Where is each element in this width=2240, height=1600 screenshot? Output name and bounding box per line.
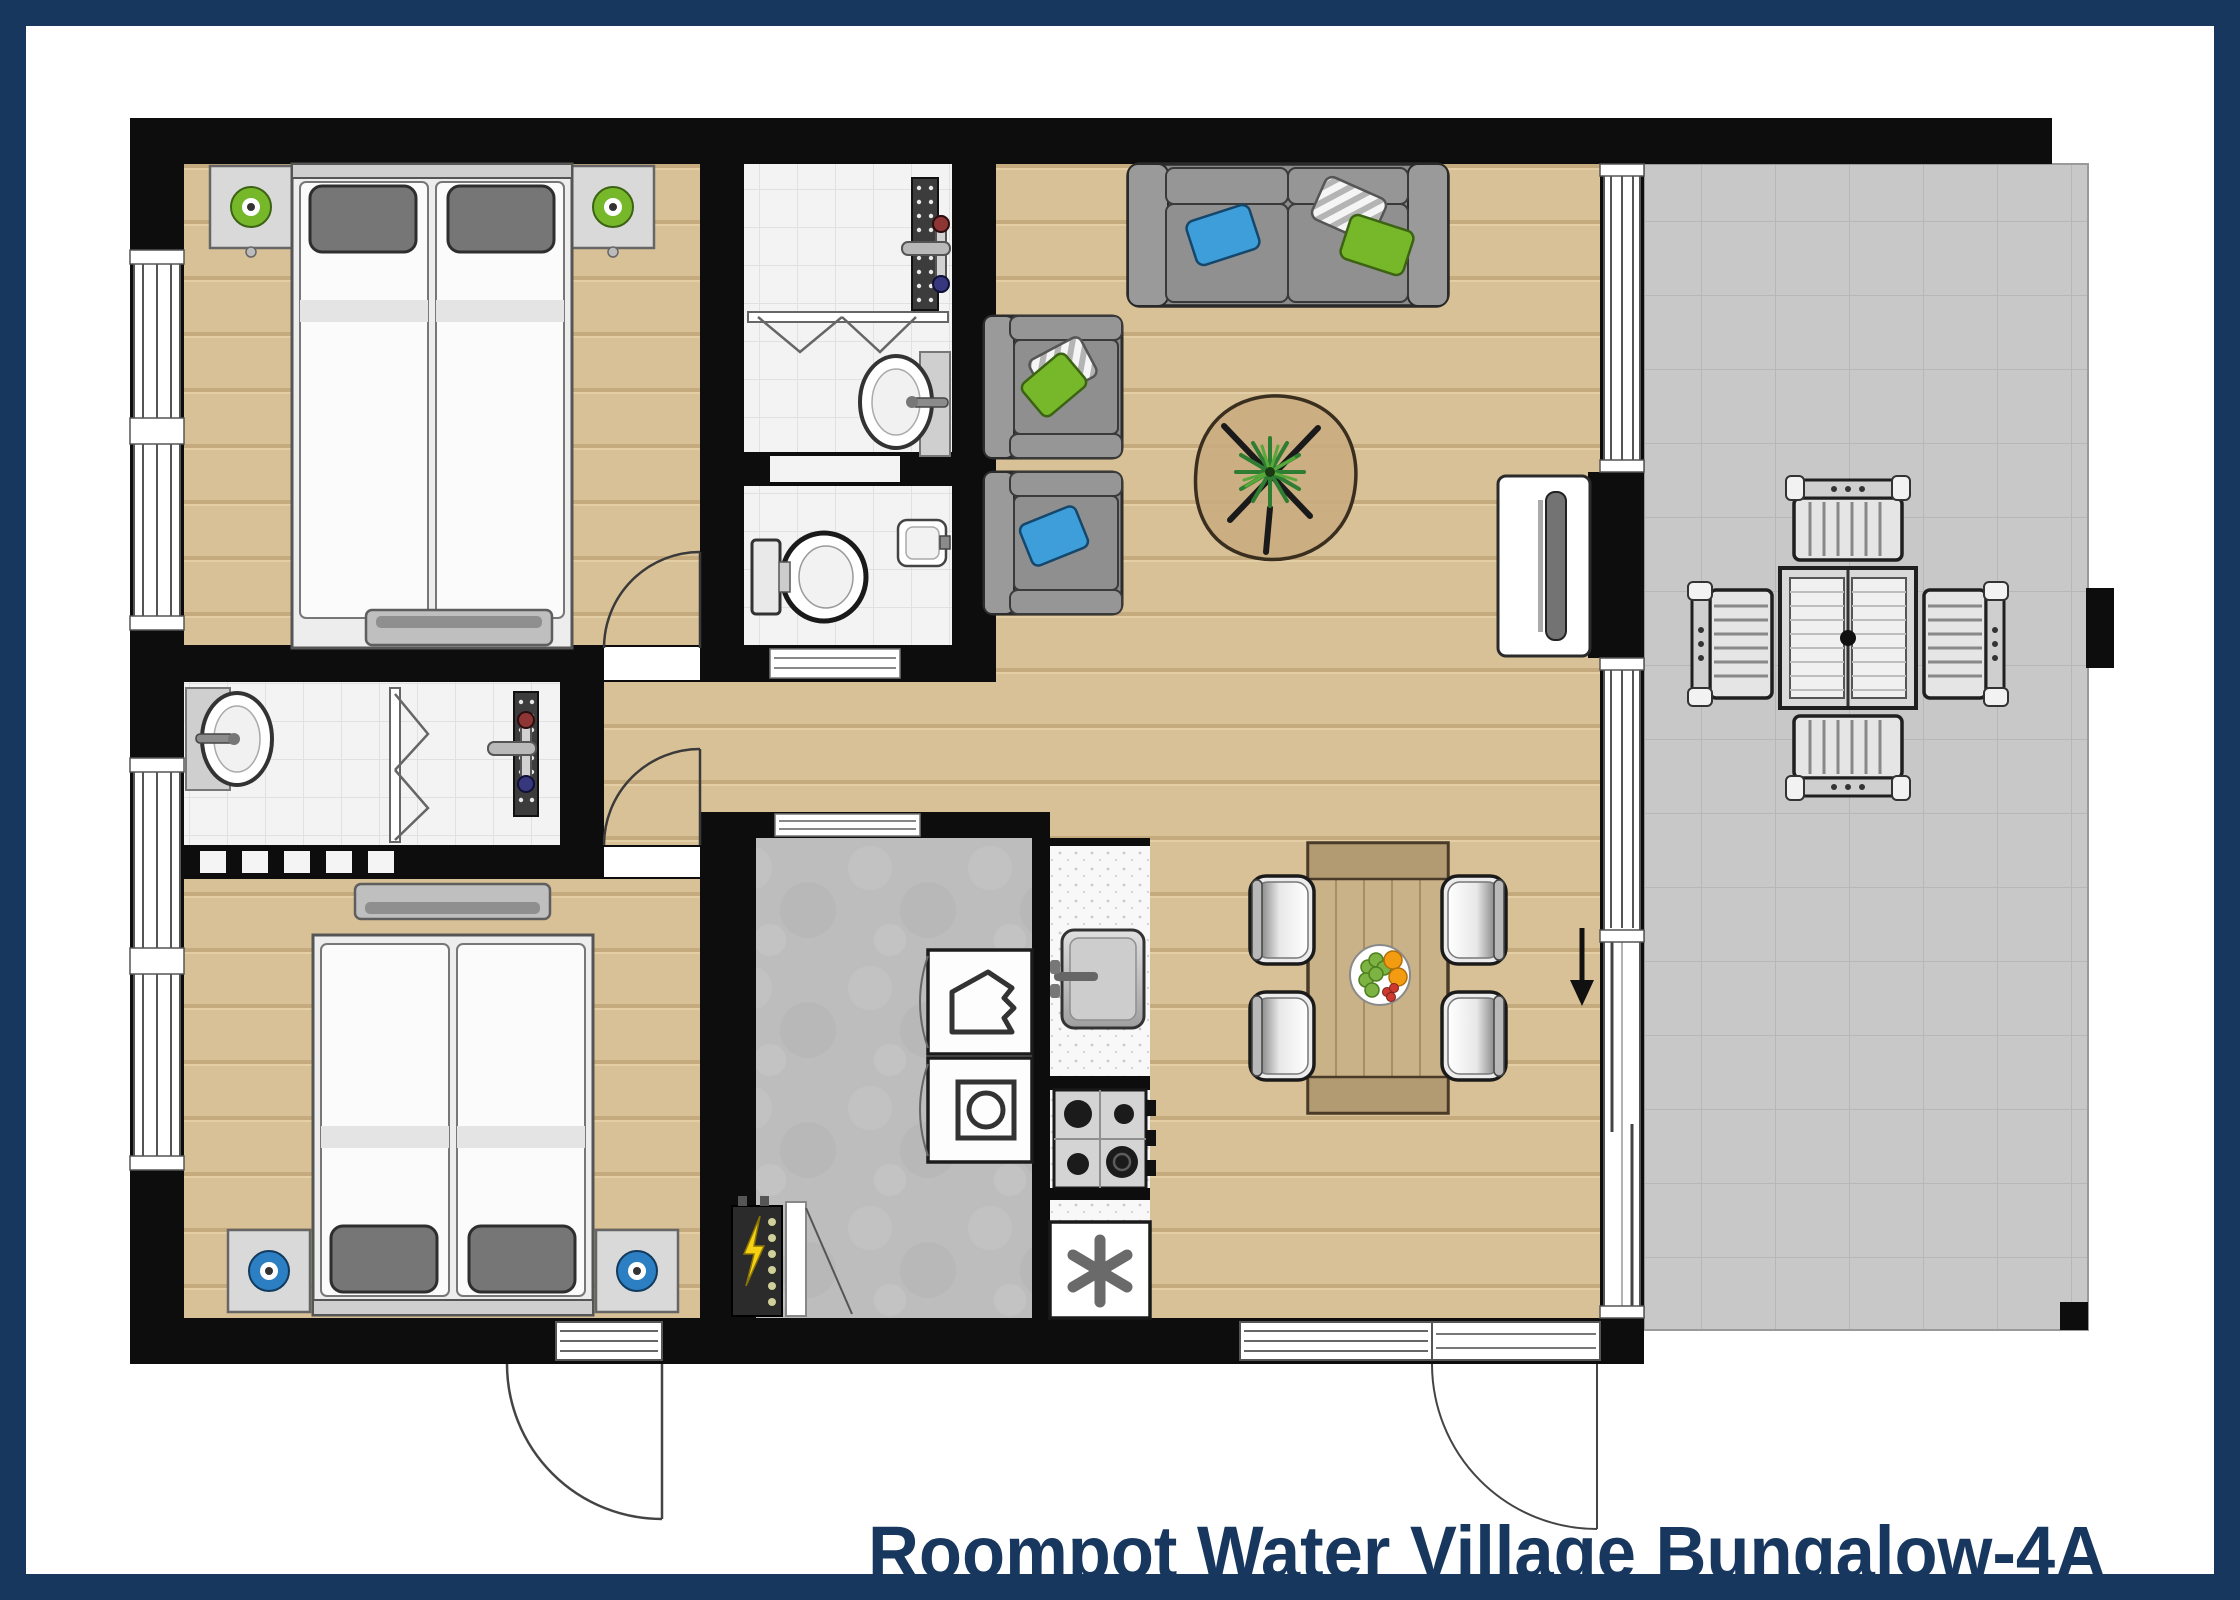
terrace-chair-top bbox=[1786, 476, 1910, 560]
washbasin-bathroom bbox=[860, 352, 950, 456]
window-bedroom2 bbox=[130, 758, 184, 1170]
terrace-chair-bottom bbox=[1786, 716, 1910, 800]
hob-4-burner bbox=[1054, 1090, 1156, 1188]
nightstand-left-bl bbox=[228, 1230, 310, 1312]
kitchen bbox=[1050, 930, 1156, 1318]
armchair-2 bbox=[984, 472, 1122, 614]
kitchen-sink bbox=[1050, 930, 1144, 1028]
window-living-terrace-upper bbox=[1600, 164, 1644, 472]
pillow bbox=[310, 186, 416, 252]
wall-bedroom1-bathroom bbox=[700, 164, 744, 660]
window-living-terrace-lower bbox=[1600, 658, 1644, 932]
terrace-chair-left bbox=[1688, 582, 1772, 706]
dresser-top-line2 bbox=[365, 902, 540, 914]
corner-washbasin-wc bbox=[898, 520, 950, 566]
armchair-1 bbox=[984, 316, 1122, 458]
opening-bathroom-wc bbox=[770, 456, 900, 482]
window-bottom-living bbox=[1240, 1322, 1432, 1360]
terrace-table bbox=[1780, 568, 1916, 708]
counter-divider-1 bbox=[1050, 1076, 1150, 1090]
wall-showerroom-hall bbox=[560, 645, 604, 848]
freezer bbox=[1050, 1222, 1150, 1318]
washbasin-shower-room bbox=[186, 688, 272, 790]
washing-machine bbox=[920, 1058, 1032, 1162]
terrace-right-post bbox=[2086, 588, 2114, 668]
counter-divider-2 bbox=[1050, 1188, 1150, 1200]
wall-tv-niche bbox=[1588, 472, 1644, 658]
wall-top bbox=[130, 118, 2052, 164]
wall-utility-kitchen bbox=[1032, 838, 1050, 1318]
double-bed-bedroom2 bbox=[313, 935, 593, 1315]
floor-plan-page: Roompot Water Village Bungalow-4A bbox=[0, 0, 2240, 1600]
electrical-panel bbox=[732, 1196, 782, 1316]
tv-screen bbox=[1546, 492, 1566, 640]
window-bedroom1 bbox=[130, 250, 184, 630]
toilet bbox=[752, 533, 866, 621]
sliding-door-terrace bbox=[1600, 930, 1644, 1318]
terrace-chair-right bbox=[1924, 582, 2008, 706]
nightstand-right-bl bbox=[596, 1230, 678, 1312]
wall-kitchen-top-edge bbox=[1050, 838, 1150, 846]
dresser-top-line bbox=[376, 616, 542, 628]
tv-cabinet bbox=[1498, 476, 1590, 656]
opening-bedroom2-door bbox=[604, 847, 700, 877]
floor-plan-canvas: Roompot Water Village Bungalow-4A bbox=[0, 0, 2240, 1600]
coffee-table bbox=[1196, 396, 1356, 560]
pillow bbox=[331, 1226, 437, 1292]
pillow bbox=[469, 1226, 575, 1292]
pillow bbox=[448, 186, 554, 252]
nightstand-left-green-lamp bbox=[210, 166, 292, 257]
sofa bbox=[1128, 164, 1448, 306]
threshold-hall-utility bbox=[775, 814, 920, 836]
opening-bedroom1-door bbox=[604, 647, 700, 680]
fruit-bowl bbox=[1350, 945, 1410, 1005]
plan-title: Roompot Water Village Bungalow-4A bbox=[868, 1511, 2106, 1594]
nightstand-right-green-lamp bbox=[572, 166, 654, 257]
terrace-corner-post bbox=[2060, 1302, 2088, 1330]
double-bed-bedroom1 bbox=[292, 164, 572, 648]
dishwasher bbox=[920, 950, 1032, 1054]
threshold-wc-door bbox=[770, 649, 900, 678]
